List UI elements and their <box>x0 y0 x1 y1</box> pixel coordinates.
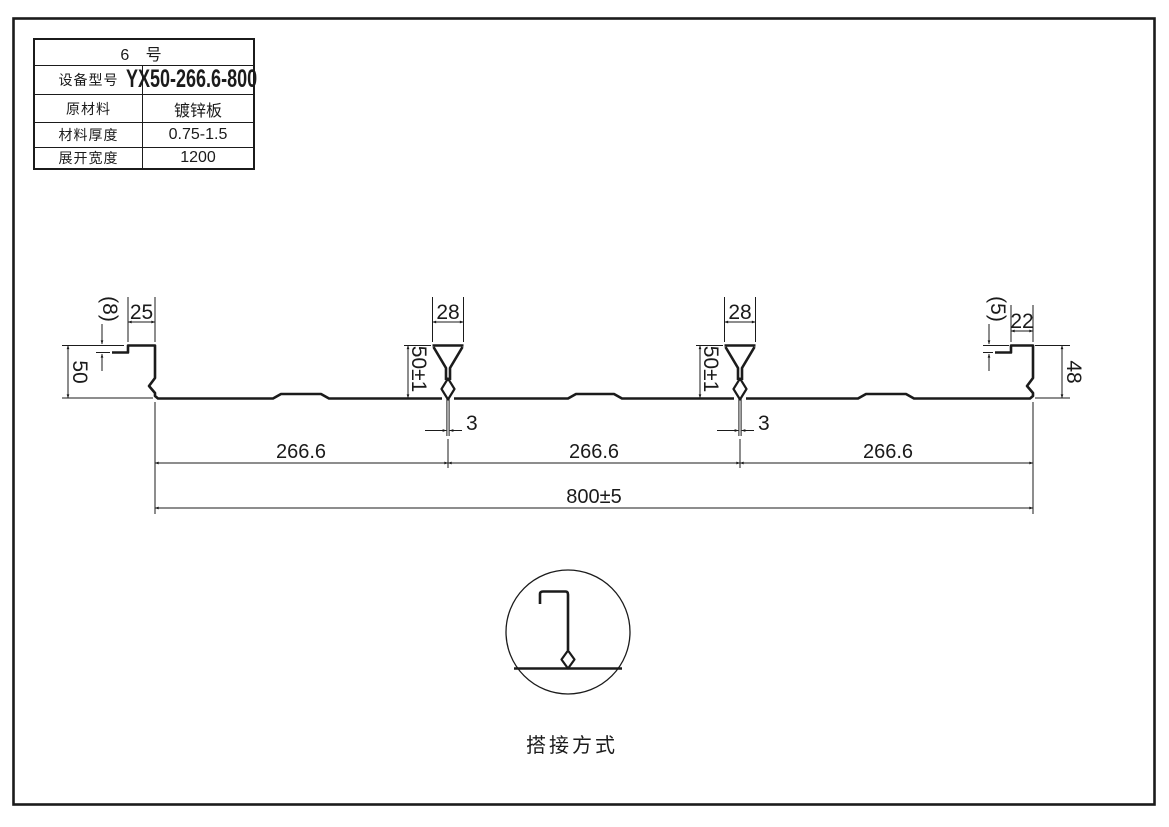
dim-left-height: 50 <box>68 360 91 383</box>
spec-value-material: 镀锌板 <box>143 95 253 122</box>
dim-rib2-height: 50±1 <box>699 346 722 393</box>
spec-label-coil-width: 展开宽度 <box>35 148 143 168</box>
dim-right-lip-drop: (5) <box>986 296 1009 322</box>
dim-overall-width: 800±5 <box>566 486 621 508</box>
dim-rib1-gap: 3 <box>466 412 478 435</box>
extension-lines <box>62 297 1070 514</box>
profile-left-segment <box>112 346 442 399</box>
dim-module-2: 266.6 <box>569 441 619 463</box>
rib2-slit <box>739 399 741 436</box>
detail-upper-sheet-hook <box>540 592 568 651</box>
profile-outline <box>112 346 1033 437</box>
lap-joint-detail: 搭接方式 <box>506 570 630 757</box>
profile-rib-1 <box>433 346 464 437</box>
rib1-slit <box>447 399 449 436</box>
table-row: 展开宽度 1200 <box>35 147 253 168</box>
dim-module-1: 266.6 <box>276 441 326 463</box>
dim-left-lip-drop: (8) <box>98 296 121 322</box>
dim-rib1-height: 50±1 <box>407 346 430 393</box>
spec-value-model: YX50-266.6-800 <box>143 66 253 94</box>
table-row: 设备型号 YX50-266.6-800 <box>35 65 253 94</box>
rib1-detent-diamond <box>442 379 455 400</box>
spec-table-header: 6 号 <box>35 40 253 65</box>
dim-rib2-top-width: 28 <box>728 301 751 324</box>
dim-left-flange-width: 25 <box>130 301 153 324</box>
table-row: 材料厚度 0.75-1.5 <box>35 122 253 147</box>
spec-value-thickness: 0.75-1.5 <box>143 123 253 147</box>
dim-right-flange-width: 22 <box>1010 310 1033 333</box>
dim-right-height: 48 <box>1062 360 1085 383</box>
table-row: 原材料 镀锌板 <box>35 94 253 122</box>
spec-label-material: 原材料 <box>35 95 143 122</box>
profile-right-segment <box>746 346 1033 399</box>
dimension-labels: (8) 25 50 28 50±1 3 28 50±1 3 (5) 22 48 … <box>68 296 1085 508</box>
profile-mid-segment <box>454 394 734 399</box>
dimension-lines <box>68 322 1062 508</box>
dim-rib2-gap: 3 <box>758 412 770 435</box>
drawing-sheet: (8) 25 50 28 50±1 3 28 50±1 3 (5) 22 48 … <box>0 0 1169 827</box>
spec-value-coil-width: 1200 <box>143 148 253 168</box>
profile-rib-2 <box>725 346 756 437</box>
detail-caption: 搭接方式 <box>526 734 618 757</box>
dim-rib1-top-width: 28 <box>436 301 459 324</box>
model-number: YX50-266.6-800 <box>126 65 257 94</box>
detail-detent-diamond <box>562 651 575 669</box>
rib2-detent-diamond <box>734 379 747 400</box>
spec-label-thickness: 材料厚度 <box>35 123 143 147</box>
spec-table: 6 号 设备型号 YX50-266.6-800 原材料 镀锌板 材料厚度 0.7… <box>33 38 255 170</box>
dim-module-3: 266.6 <box>863 441 913 463</box>
